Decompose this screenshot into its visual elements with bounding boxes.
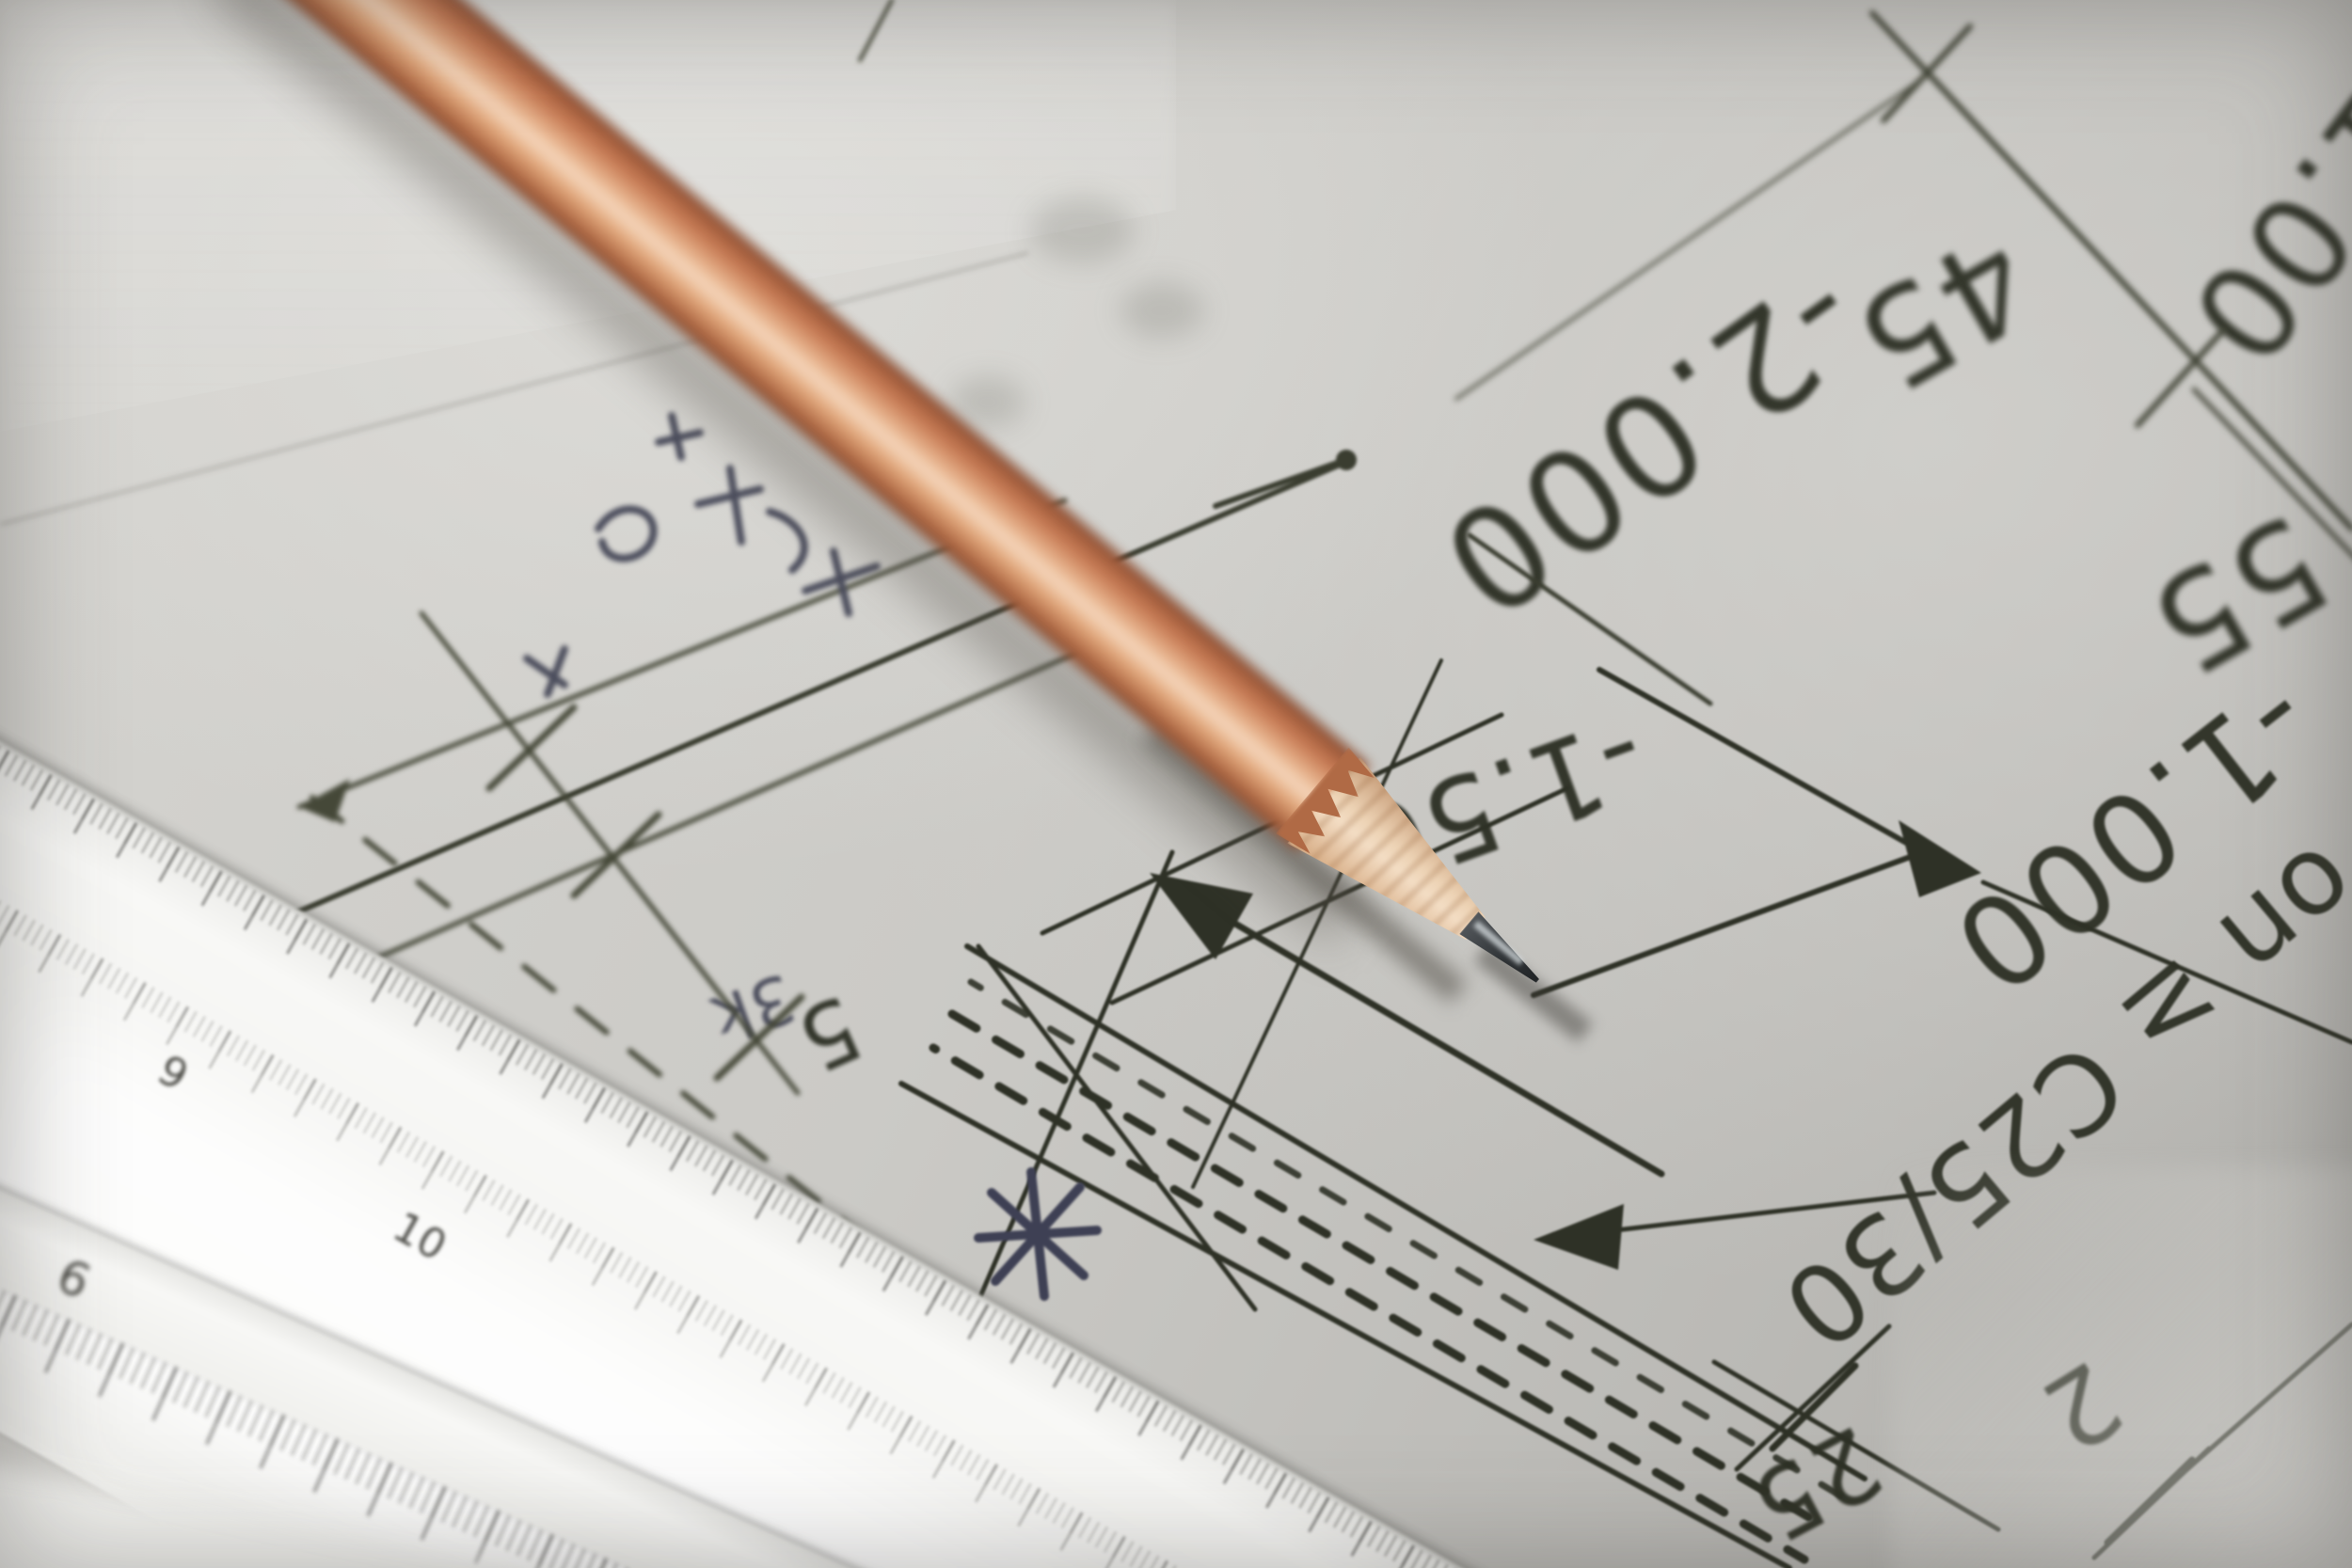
construction-line (1983, 882, 2352, 1042)
link-line (1470, 535, 1710, 704)
section-arrowhead (1150, 873, 1253, 959)
asterisk-mark (978, 1172, 1097, 1296)
note-leader-arrowhead (1534, 1204, 1624, 1270)
level-elbow-arm (1216, 460, 1345, 506)
photo-pencil-on-blueprint: -2.000 45 1.00 55 -1.50 -1.000 on ≥ C25/… (0, 0, 2352, 1568)
dimension-arrowhead (299, 779, 350, 822)
level-flag-arrowhead (1899, 820, 1981, 897)
construction-line (958, 852, 1172, 1349)
extension-line (2194, 389, 2352, 564)
level-flag-line (1599, 670, 1923, 852)
extension-line (1456, 77, 1925, 399)
level-elbow-dot (1336, 450, 1357, 470)
pale-corner-reflection (1891, 1166, 2352, 1568)
level-flag-line (1534, 852, 1923, 995)
edge-tick (860, 0, 892, 60)
note-leader-line (1599, 1193, 1934, 1232)
dimension-line (1872, 13, 2352, 529)
